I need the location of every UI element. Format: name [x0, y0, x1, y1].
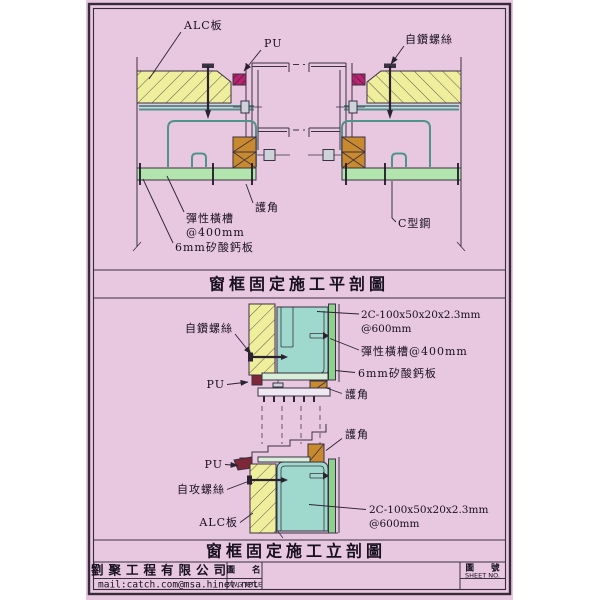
label-calcium-silicate-board-elev: 6mm矽酸鈣板: [358, 366, 437, 380]
label-pu-lower: PU: [205, 458, 223, 471]
pu-seal-upper: [252, 375, 262, 385]
label-corner-guard: 護角: [255, 200, 279, 214]
label-pu: PU: [264, 37, 282, 50]
label-pu-upper: PU: [207, 378, 225, 391]
label-self-drilling-screw-elev: 自鑽螺絲: [185, 321, 233, 335]
silicate-board-strip-lower: [329, 459, 336, 533]
label-c-channel-spec2: 2C-100x50x20x2.3mm: [369, 504, 488, 516]
label-c-channel-spec: 2C-100x50x20x2.3mm: [361, 309, 480, 321]
label-alc-board: ALC板: [183, 18, 223, 32]
label-corner-guard-lower: 護角: [345, 427, 369, 441]
label-calcium-silicate-board: 6mm矽酸鈣板: [175, 240, 254, 254]
label-elastic-channel-elev: 彈性橫槽@400mm: [361, 344, 468, 358]
sheet-no-label-en: SHEET NO.: [465, 572, 500, 580]
dwg-title-label-zh: 圖 名: [227, 565, 268, 576]
sill-packing-strip: [258, 457, 310, 462]
label-c-channel-spec-spacing: @600mm: [361, 323, 411, 335]
elevation-section-title: 窗框固定施工立剖圖: [206, 542, 386, 561]
drawing-svg: ALC板 PU 自鑽螺絲 彈性橫槽 @400mm 護角 C型鋼 6mm矽酸鈣板 …: [0, 0, 600, 600]
label-corner-guard-upper: 護角: [345, 387, 369, 401]
alc-panel-upper: [249, 304, 275, 375]
label-c-channel: C型鋼: [398, 216, 431, 230]
label-alc-board-elev: ALC板: [198, 515, 238, 529]
company-name: 劉聚工程有限公司: [90, 563, 231, 578]
double-c-channel-lower: [277, 462, 328, 531]
label-self-tapping-screw: 自攻螺絲: [177, 482, 225, 496]
double-c-channel-upper: [277, 307, 328, 377]
label-elastic-channel-spacing: @400mm: [186, 226, 245, 239]
label-self-drilling-screw: 自鑽螺絲: [405, 32, 453, 46]
label-c-channel-spec2-spacing: @600mm: [369, 518, 419, 530]
label-elastic-channel: 彈性橫槽: [186, 211, 234, 225]
head-packing-strip: [262, 373, 328, 380]
alc-panel-lower: [250, 464, 276, 533]
drawing-page: ALC板 PU 自鑽螺絲 彈性橫槽 @400mm 護角 C型鋼 6mm矽酸鈣板 …: [0, 0, 600, 600]
silicate-board-strip-upper: [329, 304, 336, 380]
plan-section-title: 窗框固定施工平剖圖: [209, 275, 389, 294]
dwg-title-label-en: DWG TITLE: [226, 581, 262, 589]
